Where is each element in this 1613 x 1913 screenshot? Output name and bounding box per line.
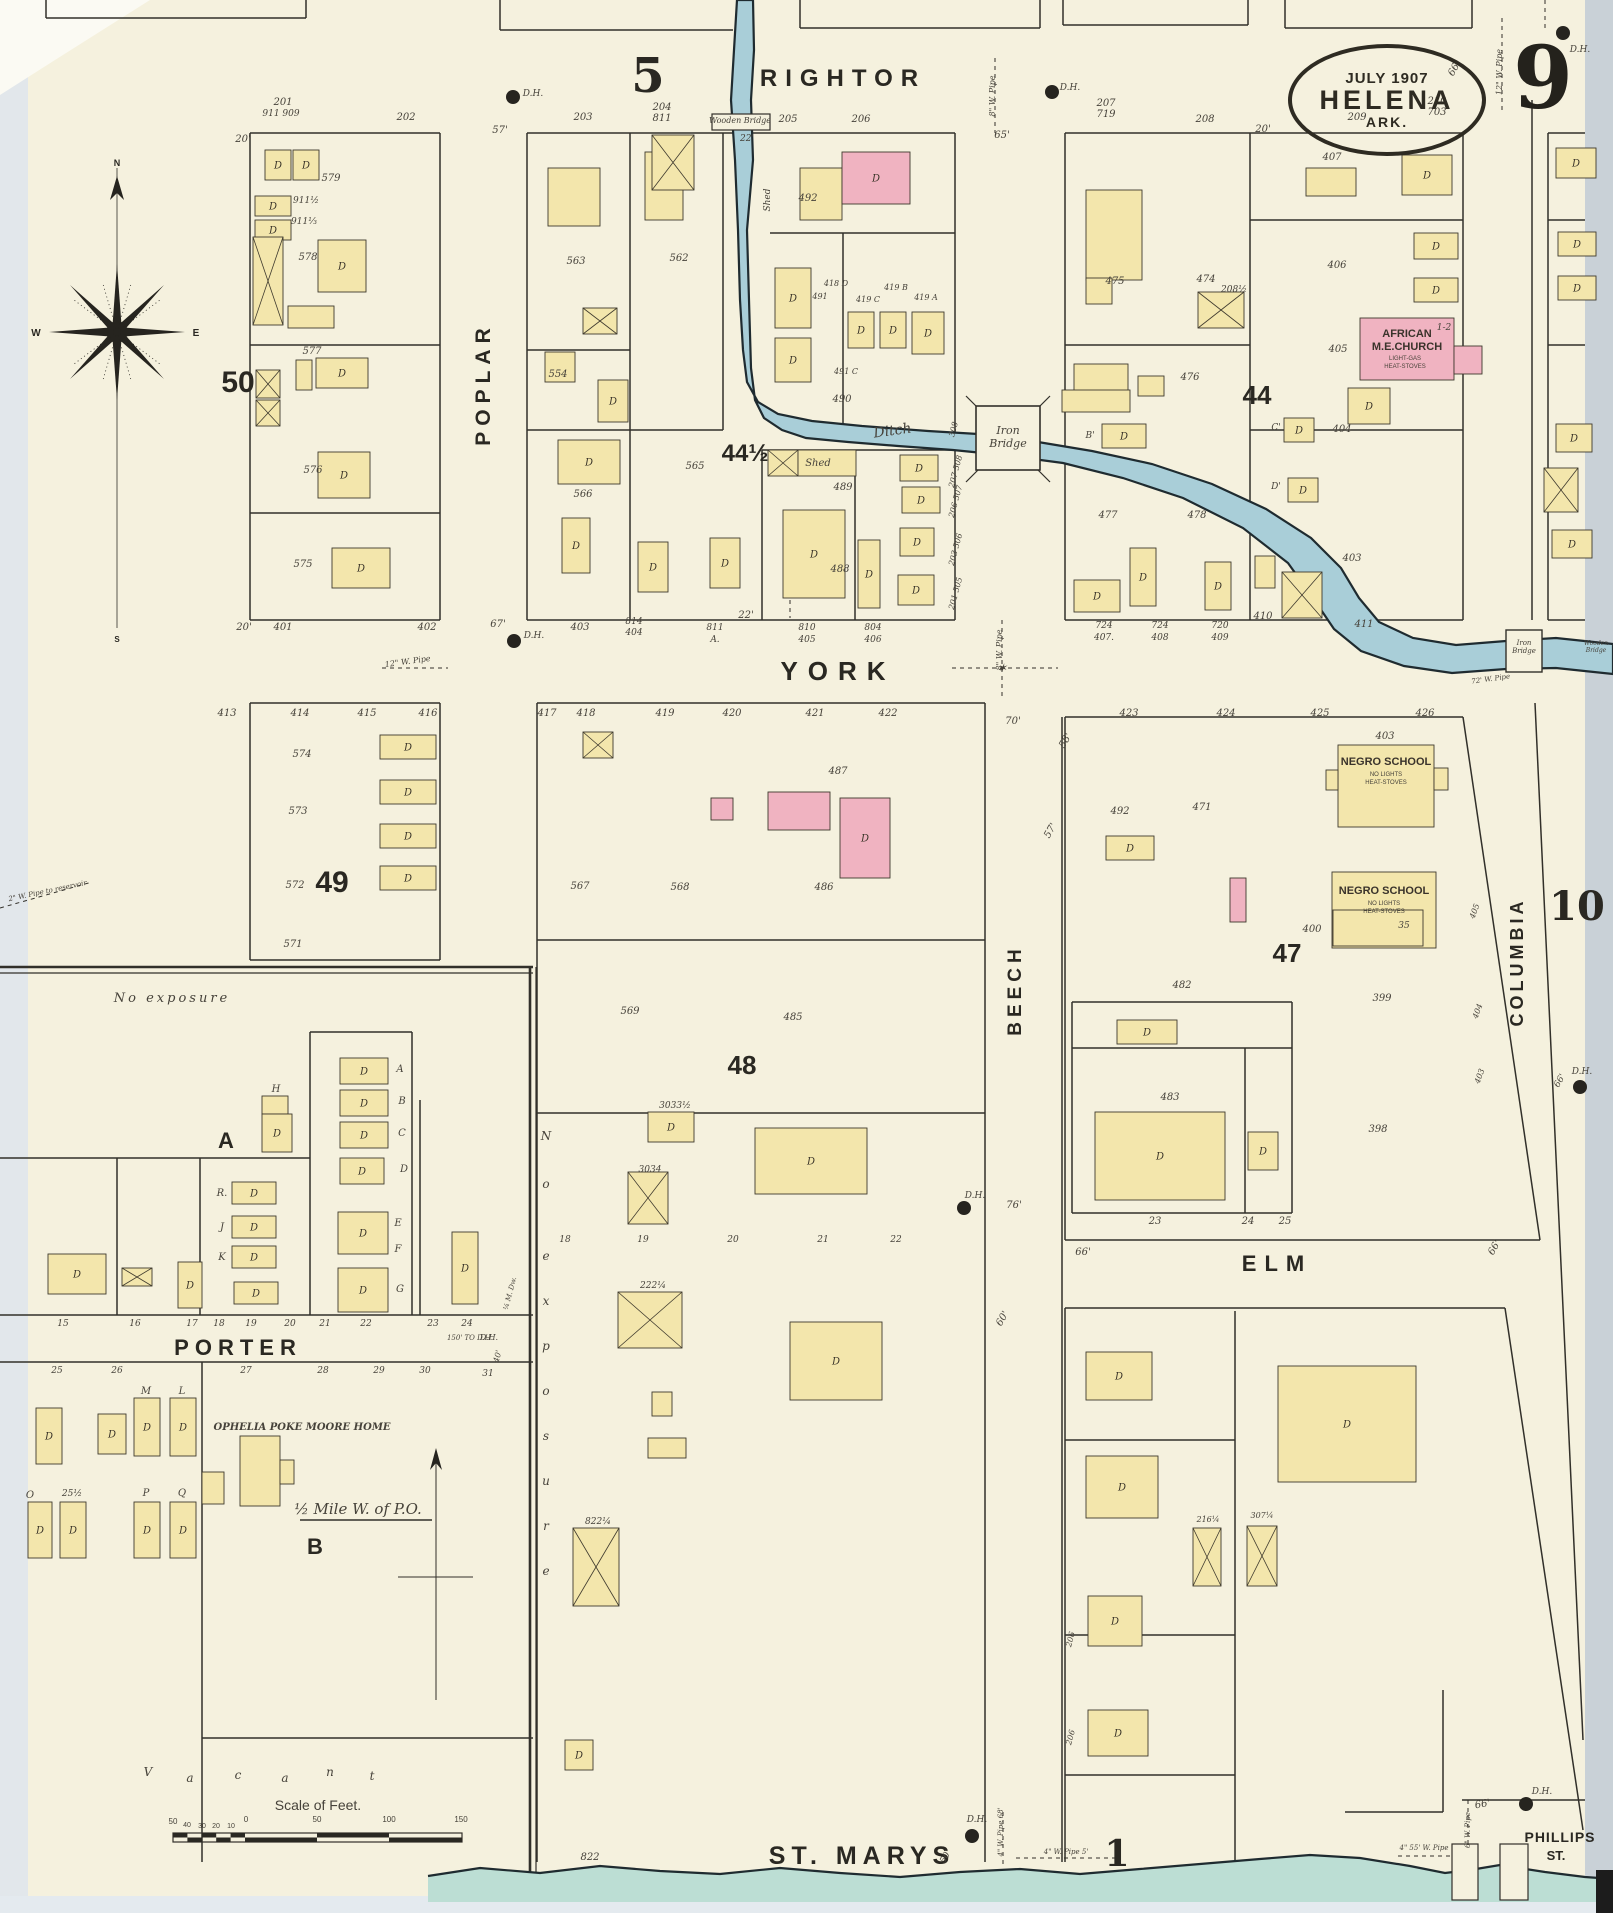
building — [1138, 376, 1164, 396]
map-label: 404 — [1331, 424, 1351, 435]
dwelling-letter: D — [359, 1131, 368, 1142]
school-2-label: NEGRO SCHOOL — [1339, 885, 1430, 897]
dwelling-letter: D — [268, 226, 277, 237]
map-label: 804 — [864, 623, 881, 633]
street-st-marys: ST. MARYS — [769, 1842, 955, 1870]
no-exposure-note: No exposure — [113, 991, 230, 1006]
map-label: Bridge — [1585, 647, 1607, 654]
map-label: 578 — [298, 252, 317, 263]
dwelling-letter: D — [249, 1189, 258, 1200]
map-label: 407. — [1093, 633, 1114, 643]
inset-b: B — [307, 1534, 323, 1559]
map-label: Bridge — [1511, 647, 1536, 655]
map-label: 29 — [372, 1366, 385, 1376]
map-label: 822¼ — [585, 1516, 611, 1527]
dwelling-letter: D — [788, 294, 797, 305]
dwelling-letter: D — [251, 1289, 260, 1300]
block-1: 1 — [1104, 1833, 1129, 1875]
map-label: 403 — [569, 622, 589, 633]
map-label: 3033½ — [659, 1100, 691, 1111]
map-label: 492 — [1109, 806, 1129, 817]
map-label: 579 — [321, 173, 341, 184]
map-label: p — [542, 1339, 550, 1353]
map-label: 720 — [1211, 621, 1228, 631]
street-phillips: PHILLIPS — [1524, 1829, 1595, 1845]
street-columbia: COLUMBIA — [1507, 898, 1527, 1027]
map-label: D.H. — [1571, 1067, 1593, 1077]
map-label: 492 — [797, 193, 817, 204]
half-mile-note: ½ Mile W. of P.O. — [294, 1500, 422, 1518]
building — [652, 1392, 672, 1416]
title-oval: JULY 1907 HELENA ARK. — [1288, 44, 1486, 156]
dwelling-letter: D — [403, 832, 412, 843]
sheet-number: 9 — [1498, 36, 1588, 122]
map-label: 18 — [213, 1319, 225, 1329]
dwelling-letter: D — [860, 834, 869, 845]
inset-a: A — [218, 1128, 234, 1153]
map-label: C — [398, 1128, 406, 1139]
map-label: 576 — [303, 465, 323, 476]
double-hydrant-dot — [957, 1201, 971, 1215]
dwelling-letter: D — [301, 161, 310, 172]
map-label: 407 — [1321, 152, 1342, 163]
map-label: 20 — [726, 1235, 739, 1245]
dwelling-letter: D — [666, 1123, 675, 1134]
pipe-label: 4" W. Pipe 5' — [1043, 1848, 1089, 1856]
dwelling-letter: D — [357, 1167, 366, 1178]
dwelling-letter: D — [356, 564, 365, 575]
map-label: 822 — [580, 1852, 599, 1863]
map-label: 400 — [1301, 924, 1322, 935]
map-label: 409 — [1210, 633, 1228, 643]
block-49: 49 — [315, 866, 348, 899]
dwelling-letter: D — [337, 369, 346, 380]
map-label: 18 — [559, 1235, 571, 1245]
map-label: 489 — [832, 482, 853, 493]
dwelling-letter: D — [584, 458, 593, 469]
building — [288, 306, 334, 328]
dwelling-letter: D — [856, 326, 865, 337]
map-label: 478 — [1186, 510, 1206, 521]
street-poplar: POPLAR — [472, 322, 495, 446]
dwelling-letter: D — [1110, 1617, 1119, 1628]
map-label: L — [178, 1386, 186, 1397]
dwelling-letter: D — [1572, 284, 1581, 295]
map-label: o — [542, 1177, 549, 1191]
map-label: 572 — [285, 880, 304, 891]
building — [1062, 390, 1130, 412]
map-label: 403 — [1374, 731, 1394, 742]
map-label: A — [395, 1064, 403, 1075]
map-label: 418 D — [823, 279, 849, 288]
map-label: D.H. — [964, 1191, 986, 1201]
map-label: 15 — [57, 1319, 69, 1329]
map-label: 25 — [50, 1366, 63, 1376]
double-hydrant-dot — [1573, 1080, 1587, 1094]
dwelling-letter: D — [359, 1067, 368, 1078]
map-label: D' — [1270, 482, 1281, 492]
dwelling-letter: D — [806, 1157, 815, 1168]
dwelling-letter: D — [1431, 286, 1440, 297]
dwelling-letter: D — [1092, 592, 1101, 603]
map-label: 27 — [239, 1366, 252, 1376]
overlay — [245, 1838, 317, 1843]
map-label: 17 — [186, 1319, 198, 1329]
map-label: D.H. — [523, 631, 545, 641]
map-label: 724 — [1151, 621, 1168, 631]
map-label: 475 — [1104, 276, 1124, 287]
pipe-label: 4" 55' W. Pipe — [1399, 1844, 1449, 1852]
map-label: F — [394, 1244, 403, 1255]
school-1-label: NEGRO SCHOOL — [1341, 756, 1432, 768]
map-label: 554 — [548, 369, 567, 380]
block-50: 50 — [221, 366, 254, 399]
map-label: 22 — [889, 1235, 902, 1245]
double-hydrant-dot — [965, 1829, 979, 1843]
map-label: 419 C — [855, 295, 880, 304]
map-label: 574 — [292, 749, 311, 760]
map-label: 565 — [685, 461, 704, 472]
dwelling-letter: D — [44, 1432, 53, 1443]
building-pink — [1454, 346, 1482, 374]
map-label: 474 — [1195, 274, 1215, 285]
map-label: J — [218, 1222, 225, 1233]
map-label: 67' — [490, 619, 505, 630]
dwelling-letter: D — [1142, 1028, 1151, 1039]
map-label: 719 — [1096, 109, 1116, 120]
building — [648, 1438, 686, 1458]
map-label: 810 — [798, 623, 815, 633]
map-label: 201 — [272, 97, 292, 108]
street-elm: ELM — [1242, 1251, 1312, 1276]
building-pink — [711, 798, 733, 820]
map-label: HEAT-STOVES — [1365, 780, 1406, 786]
building — [1255, 556, 1275, 588]
dwelling-letter: D — [1113, 1729, 1122, 1740]
map-label: 911 909 — [262, 109, 299, 119]
map-label: 25 — [1278, 1216, 1292, 1227]
dwelling-letter: D — [35, 1526, 44, 1537]
map-label: 207 — [1095, 98, 1116, 109]
map-label: e — [542, 1249, 549, 1263]
map-label: 811 — [652, 113, 671, 124]
map-label: 482 — [1171, 980, 1191, 991]
map-label: 401 — [272, 622, 292, 633]
map-label: V — [144, 1765, 154, 1779]
map-label: 419 A — [913, 293, 938, 302]
dwelling-letter: D — [1213, 582, 1222, 593]
map-label: a — [186, 1771, 193, 1785]
map-label: Q — [178, 1488, 186, 1499]
pipe-label: 6" W. Pipe — [1464, 1812, 1472, 1848]
map-label: 31 — [482, 1369, 493, 1379]
map-label: 421 — [804, 708, 824, 719]
block-10: 10 — [1549, 883, 1605, 930]
map-label: 208 — [1194, 114, 1214, 125]
map-label: 724 — [1095, 621, 1112, 631]
map-label: 10 — [227, 1823, 235, 1830]
map-label: 22' — [739, 134, 754, 144]
map-label: 23 — [426, 1319, 439, 1329]
building — [280, 1460, 294, 1484]
dwelling-letter: D — [185, 1281, 194, 1292]
dwelling-letter: D — [809, 550, 818, 561]
dwelling-letter: D — [272, 1129, 281, 1140]
dwelling-letter: D — [914, 464, 923, 475]
map-label: 20' — [1254, 124, 1270, 135]
map-label: 20 — [212, 1823, 220, 1830]
map-label: A. — [709, 635, 719, 645]
map-label: 76' — [1006, 1200, 1021, 1211]
map-label: G — [396, 1284, 404, 1295]
double-hydrant-dot — [507, 634, 521, 648]
map-label: 491 C — [833, 367, 858, 376]
block-48: 48 — [728, 1050, 757, 1080]
map-label: 25½ — [61, 1488, 82, 1499]
building — [1086, 190, 1142, 280]
map-label: Shed — [805, 458, 831, 469]
map-label: D.H. — [522, 89, 544, 99]
dwelling-letter: D — [864, 570, 873, 581]
map-label: NO LIGHTS — [1370, 772, 1402, 778]
map-label: a — [281, 1771, 288, 1785]
map-label: 814 — [625, 617, 642, 627]
map-label: 20' — [234, 134, 250, 145]
building-pink — [1230, 878, 1246, 922]
map-label: N — [540, 1129, 552, 1143]
map-label: 423 — [1118, 708, 1138, 719]
map-label: 205 — [777, 114, 797, 125]
map-label: 23 — [1148, 1216, 1162, 1227]
map-label: 405 — [1327, 344, 1347, 355]
overlay — [216, 1838, 230, 1843]
map-label: 0 — [244, 1815, 249, 1824]
map-label: 24 — [460, 1319, 473, 1329]
map-label: 65' — [994, 130, 1009, 141]
map-label: D.H. — [966, 1815, 988, 1825]
ophelia-poke-moore-home: OPHELIA POKE MOORE HOME — [213, 1422, 390, 1433]
map-label: C' — [1271, 423, 1280, 433]
dwelling-letter: D — [1364, 402, 1373, 413]
map-label: 208½ — [1220, 284, 1247, 295]
map-label: Shed — [763, 188, 773, 211]
map-label: 419 B — [883, 283, 908, 292]
overlay — [187, 1838, 201, 1843]
dwelling-letter: D — [249, 1253, 258, 1264]
map-label: B' — [1084, 431, 1094, 441]
map-label: 483 — [1159, 1092, 1179, 1103]
map-label: 19 — [245, 1319, 257, 1329]
map-label: D.H. — [479, 1333, 498, 1342]
map-label: x — [543, 1294, 550, 1308]
block-44: 44 — [1243, 380, 1272, 410]
title-city: HELENA — [1319, 87, 1454, 114]
dwelling-letter: D — [1294, 426, 1303, 437]
map-label: 566 — [573, 489, 593, 500]
dwelling-letter: D — [268, 202, 277, 213]
map-label: 414 — [289, 708, 309, 719]
building-pink — [768, 792, 830, 830]
map-label: 66' — [1075, 1247, 1090, 1258]
map-label: 410 — [1252, 611, 1273, 622]
map-label: c — [235, 1768, 242, 1782]
map-label: O — [26, 1490, 34, 1501]
double-hydrant-dot — [506, 90, 520, 104]
dwelling-letter: D — [1125, 844, 1134, 855]
dwelling-letter: D — [358, 1286, 367, 1297]
map-label: E — [393, 1218, 402, 1229]
map-label: 416 — [417, 708, 438, 719]
map-label: 405 — [797, 635, 815, 645]
map-label: 40 — [183, 1822, 191, 1829]
dwelling-letter: D — [1342, 1420, 1351, 1431]
scale-title: Scale of Feet. — [275, 1797, 361, 1813]
dwelling-letter: D — [1431, 242, 1440, 253]
map-label: 19 — [637, 1235, 649, 1245]
map-label: 30 — [198, 1823, 206, 1830]
dwelling-letter: D — [337, 262, 346, 273]
map-label: 26 — [110, 1366, 123, 1376]
block-5: 5 — [631, 48, 664, 104]
dwelling-letter: D — [788, 356, 797, 367]
dwelling-letter: D — [1117, 1483, 1126, 1494]
map-label: 100 — [382, 1815, 396, 1824]
overlay — [389, 1838, 462, 1843]
building — [1306, 168, 1356, 196]
map-label: 216¼ — [1195, 1515, 1219, 1524]
dwelling-letter: D — [1258, 1147, 1267, 1158]
map-label: 406 — [863, 635, 881, 645]
map-label: 487 — [827, 766, 848, 777]
map-label: HEAT-STOVES — [1363, 909, 1404, 915]
pipe-label: 8" W. Pipe — [988, 75, 997, 116]
map-label: 22' — [737, 610, 753, 621]
dwelling-letter: D — [403, 788, 412, 799]
map-label: S — [114, 635, 120, 644]
dwelling-letter: D — [1567, 540, 1576, 551]
map-label: 203 — [572, 112, 592, 123]
sanborn-map-sheet: DDDDDDDDDDDDDDDDDDDDDDDDDDDDDDDDDDDDDDDD… — [0, 0, 1613, 1913]
map-label: 413 — [216, 708, 236, 719]
dwelling-letter: D — [720, 559, 729, 570]
map-label: 408 — [1150, 633, 1168, 643]
map-label: 563 — [566, 256, 585, 267]
map-label: 3034 — [639, 1165, 662, 1175]
dwelling-letter: D — [142, 1423, 151, 1434]
street-york: YORK — [780, 656, 895, 686]
map-label: Iron — [995, 424, 1019, 437]
map-label: 20 — [283, 1319, 296, 1329]
page-corner-mark — [1596, 1870, 1613, 1913]
map-label: 307¼ — [1250, 1511, 1273, 1520]
map-label: n — [326, 1765, 334, 1779]
map-label: N — [114, 158, 121, 168]
map-label: 21 — [816, 1235, 828, 1245]
building — [1326, 770, 1338, 790]
map-canvas: DDDDDDDDDDDDDDDDDDDDDDDDDDDDDDDDDDDDDDDD… — [0, 0, 1613, 1913]
map-label: 569 — [620, 1006, 640, 1017]
dwelling-letter: D — [1119, 432, 1128, 443]
dwelling-letter: D — [142, 1526, 151, 1537]
map-label: 21 — [318, 1319, 330, 1329]
map-label: 424 — [1215, 708, 1235, 719]
map-label: 24 — [1241, 1216, 1255, 1227]
map-label: 28 — [316, 1366, 329, 1376]
map-label: 50 — [313, 1815, 322, 1824]
map-label: R. — [216, 1188, 228, 1199]
dwelling-letter: D — [571, 541, 580, 552]
map-label: 404 — [624, 628, 642, 638]
dwelling-letter: D — [1569, 434, 1578, 445]
dwelling-letter: D — [1298, 486, 1307, 497]
building — [1434, 768, 1448, 790]
map-label: 491 — [811, 292, 827, 301]
map-label: 571 — [283, 939, 302, 950]
map-label: 490 — [831, 394, 852, 405]
street-porter: PORTER — [174, 1335, 302, 1360]
block-47: 47 — [1273, 938, 1302, 968]
street-phillips-st: ST. — [1547, 1848, 1566, 1863]
map-label: 1-2 — [1437, 323, 1452, 333]
dwelling-letter: D — [648, 563, 657, 574]
map-label: 911½ — [293, 195, 319, 206]
map-label: B — [397, 1096, 405, 1107]
overlay — [317, 1833, 389, 1838]
map-label: o — [542, 1384, 549, 1398]
map-label: 418 — [575, 708, 595, 719]
dwelling-letter: D — [911, 586, 920, 597]
double-hydrant-dot — [1045, 85, 1059, 99]
map-label: 567 — [570, 881, 590, 892]
map-label: 70' — [1005, 716, 1020, 727]
building — [296, 360, 312, 390]
double-hydrant-dot — [1519, 1797, 1533, 1811]
map-label: 16 — [129, 1319, 141, 1329]
block-44half: 44½ — [722, 440, 769, 467]
dwelling-letter: D — [178, 1423, 187, 1434]
stream-causeway — [1452, 1844, 1478, 1900]
map-label: 476 — [1179, 372, 1200, 383]
map-label: 471 — [1191, 802, 1211, 813]
title-state: ARK. — [1366, 114, 1408, 130]
map-label: 150 — [454, 1815, 468, 1824]
map-label: u — [542, 1474, 550, 1488]
dwelling-letter: D — [871, 174, 880, 185]
church-label: AFRICAN — [1382, 328, 1432, 340]
building — [202, 1472, 224, 1504]
map-label: 399 — [1372, 993, 1392, 1004]
map-label: 411 — [1353, 619, 1373, 630]
map-label: 426 — [1414, 708, 1435, 719]
map-label: LIGHT-GAS — [1389, 356, 1421, 362]
map-label: 35 — [1398, 921, 1410, 931]
map-label: Bridge — [988, 437, 1027, 450]
building — [548, 168, 600, 226]
dwelling-letter: D — [249, 1223, 258, 1234]
dwelling-letter: D — [68, 1526, 77, 1537]
map-label: 398 — [1368, 1124, 1387, 1135]
map-label: W — [31, 328, 41, 339]
map-label: D.H. — [1059, 83, 1081, 93]
building — [240, 1436, 280, 1506]
map-label: 477 — [1097, 510, 1118, 521]
map-label: 402 — [416, 622, 436, 633]
map-label: D.H. — [1531, 1787, 1553, 1797]
dwelling-letter: D — [72, 1270, 81, 1281]
overlay — [173, 1833, 187, 1838]
map-label: 575 — [293, 559, 312, 570]
map-label: 57' — [492, 125, 507, 136]
